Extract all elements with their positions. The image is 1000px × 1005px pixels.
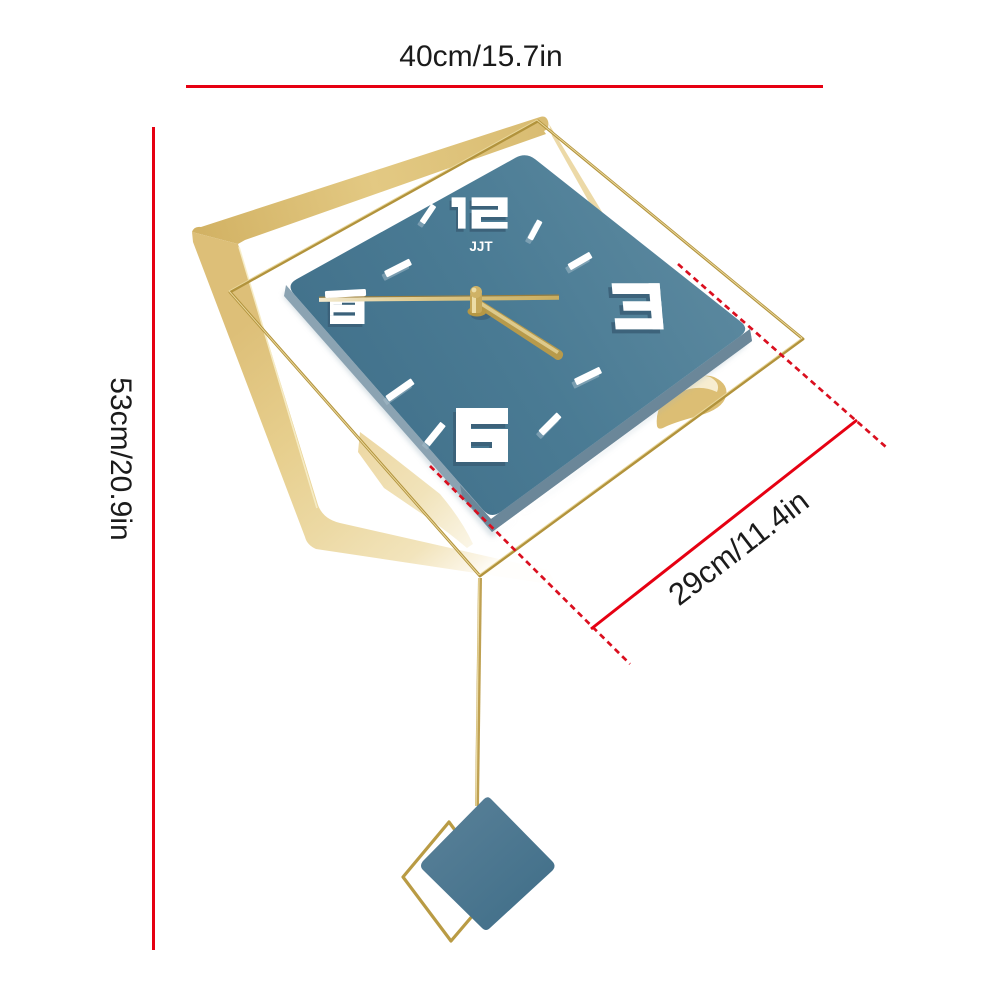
svg-text:JJT: JJT (469, 239, 493, 254)
svg-text:53cm/20.9in: 53cm/20.9in (104, 377, 137, 540)
svg-text:40cm/15.7in: 40cm/15.7in (399, 40, 562, 73)
